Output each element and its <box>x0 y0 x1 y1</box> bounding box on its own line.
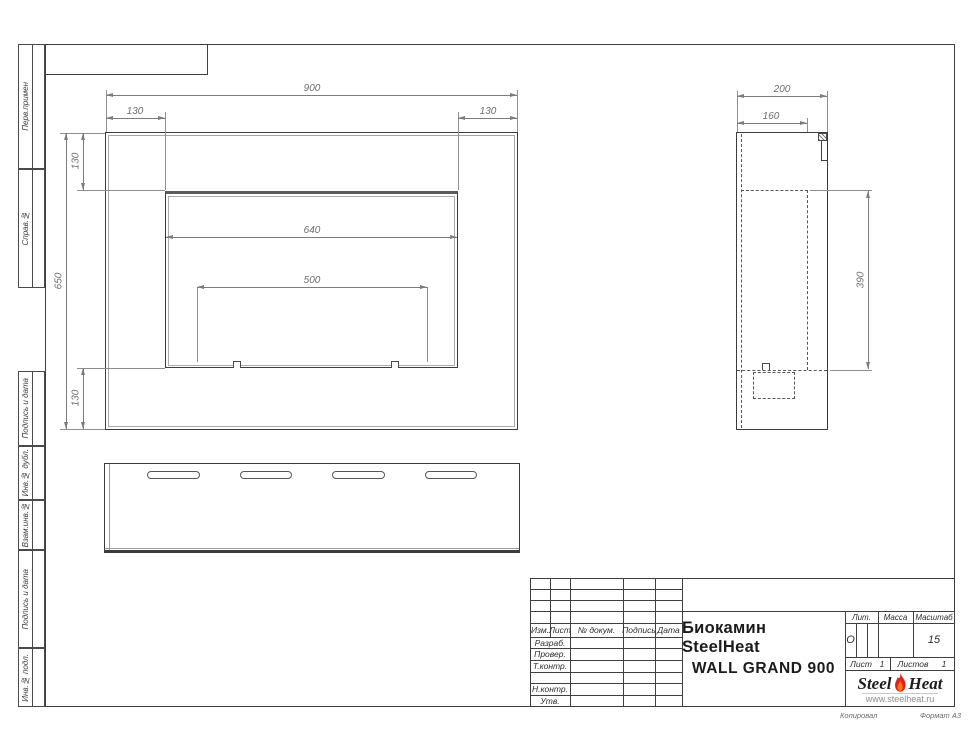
row-nkontr: Н.контр. <box>530 683 570 695</box>
side-hidden-line-inner <box>807 190 808 370</box>
dim-line-390 <box>868 191 869 369</box>
scale-label: Масштаб <box>913 611 955 623</box>
stamp-label: Инв.№ дубл. <box>21 449 30 496</box>
row-utv: Утв. <box>530 695 570 707</box>
ext-line <box>810 190 872 191</box>
row-empty <box>530 672 570 683</box>
stamp-label: Инв.№ подл. <box>21 654 30 702</box>
vent-slot-1 <box>147 471 200 479</box>
format-note: Формат А3 <box>920 711 961 720</box>
dim-value-500: 500 <box>301 275 324 286</box>
ext-line <box>77 190 165 191</box>
dim-line-130-left-bottom <box>83 368 84 429</box>
ext-line <box>517 90 518 132</box>
dim-line-900 <box>106 95 517 96</box>
title-block-line <box>623 578 624 707</box>
dim-line-640 <box>166 237 457 238</box>
col-ndocum: № докум. <box>570 623 623 637</box>
steelheat-logo: Steel Heat www.steelheat.ru <box>845 670 955 707</box>
stamp-cell-podpis-data-1: Подпись и дата <box>18 371 45 446</box>
lit-label: Лит. <box>845 611 878 623</box>
sheets-value: 1 <box>938 657 950 670</box>
vent-slot-4 <box>425 471 477 479</box>
stamp-label: Подпись и дата <box>21 378 30 439</box>
dim-value-650: 650 <box>54 270 65 293</box>
side-bracket-line <box>821 141 822 160</box>
document-title: Биокамин SteelHeat WALL GRAND 900 <box>682 611 845 686</box>
ext-line <box>77 368 165 369</box>
row-prover: Провер. <box>530 648 570 660</box>
stamp-cell-podpis-data-2: Подпись и дата <box>18 550 45 648</box>
stamp-cell-perv-primen: Перв.примен <box>18 44 45 169</box>
massa-label: Масса <box>878 611 913 623</box>
vent-slot-3 <box>332 471 385 479</box>
title-block-line <box>530 600 682 601</box>
col-podpis: Подпись <box>623 623 655 637</box>
title-block-line <box>856 623 857 657</box>
scale-value: 15 <box>913 623 955 657</box>
dim-value-130-left-bottom: 130 <box>71 387 82 410</box>
ext-line <box>165 112 166 190</box>
title-block-line <box>655 578 656 707</box>
col-data: Дата <box>655 623 682 637</box>
dim-value-160: 160 <box>760 111 783 122</box>
col-izm: Изм. <box>530 623 550 637</box>
dim-value-640: 640 <box>301 225 324 236</box>
ext-line <box>197 287 198 362</box>
logo-steel-text: Steel <box>858 675 892 692</box>
dim-line-650 <box>66 133 67 429</box>
ext-line <box>827 91 828 132</box>
ref-stamp-right-line <box>207 45 208 75</box>
sheets-label: Листов <box>895 657 931 670</box>
ext-line <box>830 370 872 371</box>
bottom-view-inner-bottom-line <box>105 548 519 549</box>
title-line-2: WALL GRAND 900 <box>692 660 835 678</box>
title-line-1: Биокамин SteelHeat <box>682 619 845 657</box>
side-bracket-line-bottom <box>821 160 828 161</box>
stamp-label: Перв.примен <box>21 82 30 131</box>
dim-value-130-left-top: 130 <box>71 150 82 173</box>
side-hidden-line-top <box>741 190 808 191</box>
dim-line-130-top-right <box>458 118 517 119</box>
ext-line <box>807 118 808 132</box>
burner-clip-left <box>233 361 241 368</box>
flame-icon <box>893 673 908 692</box>
sheet-label: Лист <box>848 657 874 670</box>
row-tkontr: Т.контр. <box>530 660 570 672</box>
ext-line <box>427 287 428 362</box>
stamp-cell-inv-dubl: Инв.№ дубл. <box>18 446 45 500</box>
title-block-line <box>530 589 682 590</box>
side-mount-bracket <box>818 133 827 141</box>
dim-line-130-left-top <box>83 133 84 190</box>
dim-line-200 <box>737 96 827 97</box>
stamp-label: Подпись и дата <box>21 569 30 630</box>
stamp-label: Справ.№ <box>21 211 30 245</box>
side-hidden-line-left <box>741 134 742 428</box>
vent-slot-2 <box>240 471 292 479</box>
ext-line <box>458 112 459 190</box>
dim-value-200: 200 <box>771 84 794 95</box>
sheet-value: 1 <box>876 657 888 670</box>
logo-heat-text: Heat <box>909 675 943 692</box>
logo-url: www.steelheat.ru <box>862 693 939 704</box>
dim-value-130-top-left: 130 <box>124 106 147 117</box>
stamp-label: Взам.инв.№ <box>21 502 30 547</box>
row-razrab: Разраб. <box>530 637 570 648</box>
title-block-line <box>890 657 891 670</box>
dim-value-390: 390 <box>856 269 867 292</box>
dim-line-130-top-left <box>106 118 165 119</box>
dim-line-160 <box>737 123 807 124</box>
dim-value-130-top-right: 130 <box>477 106 500 117</box>
dim-line-500 <box>197 287 427 288</box>
side-burner-clip <box>762 363 770 370</box>
dim-value-900: 900 <box>301 83 324 94</box>
burner-clip-right <box>391 361 399 368</box>
ref-stamp-bottom-line <box>46 74 207 75</box>
title-block-line <box>867 623 868 657</box>
stamp-cell-vzam-inv: Взам.инв.№ <box>18 500 45 550</box>
stamp-cell-inv-podl: Инв.№ подл. <box>18 648 45 707</box>
stamp-cell-sprav-no: Справ.№ <box>18 169 45 288</box>
bottom-view-inner-left-line <box>109 464 110 550</box>
copy-note: Копировал <box>840 711 877 720</box>
title-block-line <box>570 578 571 707</box>
col-list: Лист <box>550 623 570 637</box>
drawing-sheet: Перв.примен Справ.№ Подпись и дата Инв.№… <box>0 0 970 749</box>
ext-line <box>60 429 105 430</box>
side-burner-box <box>753 372 795 399</box>
side-hidden-line-bottom <box>737 370 827 371</box>
lit-value: О <box>845 623 856 657</box>
